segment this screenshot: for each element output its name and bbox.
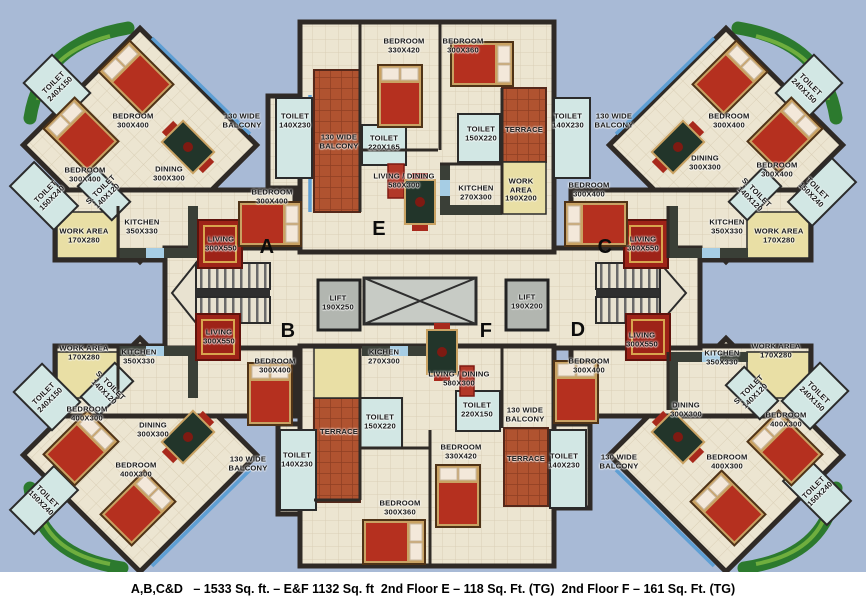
room-label: BEDROOM 400X300 bbox=[115, 462, 156, 479]
room-label: TERRACE bbox=[505, 126, 543, 135]
room-label: BEDROOM 300X360 bbox=[442, 38, 483, 55]
room-label: LIVING 300X550 bbox=[626, 332, 658, 349]
room-label: TOILET 220X150 bbox=[461, 402, 493, 419]
caption: A,B,C&D – 1533 Sq. ft. – E&F 1132 Sq. ft… bbox=[0, 582, 866, 597]
floor-plan-stage: TOILET 240X150BEDROOM 300X400DINING 300X… bbox=[0, 0, 866, 610]
room-label: KITCHEN 350X330 bbox=[709, 219, 744, 236]
room-label: BEDROOM 300X360 bbox=[379, 500, 420, 517]
room-label: TOILET 150X240 bbox=[27, 483, 62, 518]
room-label: WORK AREA 170X280 bbox=[59, 228, 108, 245]
room-label: KITCHEN 270X300 bbox=[458, 185, 493, 202]
room-label: TERRACE bbox=[320, 428, 358, 437]
room-label: TOILET 140X230 bbox=[552, 113, 584, 130]
room-label: TOILET 220X165 bbox=[368, 135, 400, 152]
room-label: BEDROOM 330X420 bbox=[440, 444, 481, 461]
room-labels-layer: TOILET 240X150BEDROOM 300X400DINING 300X… bbox=[0, 0, 866, 610]
unit-letter-D: D bbox=[571, 320, 586, 340]
room-label: TOILET 150X220 bbox=[465, 126, 497, 143]
room-label: 130 WIDE BALCONY bbox=[229, 456, 268, 473]
room-label: KITCHEN 350X330 bbox=[121, 349, 156, 366]
room-label: DINING 300X300 bbox=[137, 422, 169, 439]
room-label: LIVING / DINING 580X300 bbox=[428, 371, 489, 388]
room-label: TERRACE bbox=[507, 455, 545, 464]
room-label: LIVING / DINING 580X300 bbox=[373, 173, 434, 190]
room-label: TOILET 150X240 bbox=[797, 175, 832, 210]
room-label: BEDROOM 300X400 bbox=[708, 113, 749, 130]
room-label: LIFT 190X200 bbox=[511, 294, 543, 311]
room-label: 130 WIDE BALCONY bbox=[223, 113, 262, 130]
room-label: TOILET 140X230 bbox=[279, 113, 311, 130]
room-label: TOILET 240X150 bbox=[40, 69, 75, 104]
room-label: TOILET 240X150 bbox=[30, 380, 65, 415]
room-label: LIFT 190X250 bbox=[322, 295, 354, 312]
room-label: LIVING 300X550 bbox=[627, 236, 659, 253]
room-label: TOILET 240X150 bbox=[790, 71, 825, 106]
unit-letter-C: C bbox=[598, 237, 613, 257]
room-label: DINING 300X300 bbox=[153, 166, 185, 183]
room-label: DINING 300X300 bbox=[689, 155, 721, 172]
room-label: KITCHEN 350X330 bbox=[704, 350, 739, 367]
room-label: WORK AREA 170X280 bbox=[59, 345, 108, 362]
room-label: 130 WIDE BALCONY bbox=[600, 454, 639, 471]
room-label: WORK AREA 170X280 bbox=[751, 343, 800, 360]
room-label: 130 WIDE BALCONY bbox=[320, 134, 359, 151]
room-label: S. TOILET 140X120 bbox=[733, 374, 772, 413]
room-label: BEDROOM 300X400 bbox=[756, 162, 797, 179]
room-label: KITCHEN 350X330 bbox=[124, 219, 159, 236]
room-label: TOILET 150X240 bbox=[32, 178, 67, 213]
room-label: BEDROOM 400X300 bbox=[706, 454, 747, 471]
unit-letter-B: B bbox=[281, 321, 296, 341]
room-label: TOILET 150X220 bbox=[364, 414, 396, 431]
room-label: BEDROOM 300X400 bbox=[568, 358, 609, 375]
room-label: BEDROOM 300X400 bbox=[568, 182, 609, 199]
room-label: BEDROOM 300X400 bbox=[112, 113, 153, 130]
room-label: TOILET 150X240 bbox=[800, 474, 835, 509]
room-label: S. TOILET 140X120 bbox=[734, 177, 773, 216]
room-label: TOILET 140X230 bbox=[281, 452, 313, 469]
room-label: LIVING 300X550 bbox=[203, 329, 235, 346]
room-label: WORK AREA 190X200 bbox=[505, 177, 537, 203]
room-label: BEDROOM 330X420 bbox=[383, 38, 424, 55]
room-label: S. TOILET 140X120 bbox=[88, 370, 127, 409]
room-label: LIVING 300X550 bbox=[205, 236, 237, 253]
unit-letter-F: F bbox=[480, 321, 492, 341]
room-label: BEDROOM 300X400 bbox=[64, 167, 105, 184]
room-label: BEDROOM 300X400 bbox=[251, 189, 292, 206]
room-label: BEDROOM 400X300 bbox=[765, 412, 806, 429]
room-label: 130 WIDE BALCONY bbox=[506, 407, 545, 424]
room-label: DINING 300X300 bbox=[670, 402, 702, 419]
room-label: 130 WIDE BALCONY bbox=[595, 113, 634, 130]
room-label: WORK AREA 170X280 bbox=[754, 228, 803, 245]
room-label: KICHEN 270X300 bbox=[368, 349, 400, 366]
unit-letter-E: E bbox=[372, 219, 386, 239]
room-label: BEDROOM 300X400 bbox=[254, 358, 295, 375]
room-label: TOILET 240X150 bbox=[798, 379, 833, 414]
room-label: BEDROOM 400X300 bbox=[66, 406, 107, 423]
room-label: TOILET 140X230 bbox=[548, 453, 580, 470]
unit-letter-A: A bbox=[260, 237, 275, 257]
